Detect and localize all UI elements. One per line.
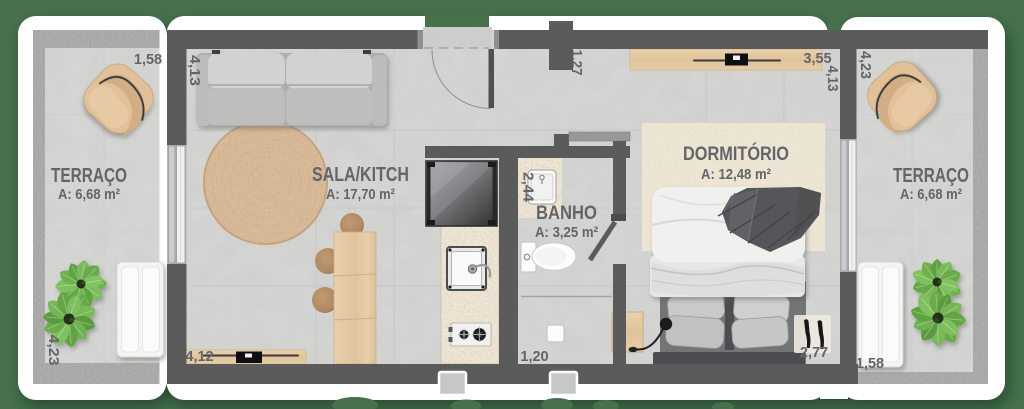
svg-text:DORMITÓRIO: DORMITÓRIO (683, 143, 789, 165)
svg-text:A: 3,25 m²: A: 3,25 m² (535, 224, 598, 241)
svg-text:4,23: 4,23 (45, 335, 61, 366)
svg-text:TERRAÇO: TERRAÇO (893, 164, 969, 187)
svg-text:4,12: 4,12 (185, 349, 213, 365)
svg-text:TERRAÇO: TERRAÇO (51, 164, 127, 187)
svg-text:A: 17,70 m²: A: 17,70 m² (326, 186, 395, 203)
svg-text:SALA/KITCH: SALA/KITCH (312, 163, 409, 186)
svg-text:4,23: 4,23 (857, 51, 873, 79)
svg-text:1,58: 1,58 (856, 356, 884, 372)
svg-text:1,58: 1,58 (134, 52, 162, 68)
svg-text:BANHO: BANHO (536, 202, 597, 224)
svg-text:2,77: 2,77 (800, 345, 828, 361)
svg-text:2,44: 2,44 (520, 172, 536, 202)
svg-text:A: 12,48 m²: A: 12,48 m² (701, 166, 771, 183)
svg-text:1,20: 1,20 (520, 349, 548, 365)
svg-text:A: 6,68 m²: A: 6,68 m² (58, 186, 120, 203)
svg-text:4,13: 4,13 (186, 55, 202, 86)
svg-text:4,13: 4,13 (824, 66, 840, 92)
svg-text:A: 6,68 m²: A: 6,68 m² (900, 186, 962, 203)
